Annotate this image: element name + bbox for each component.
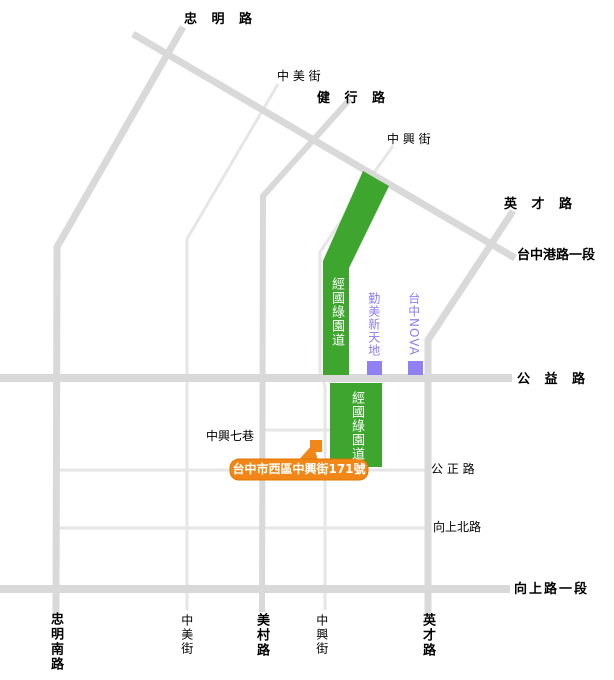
label-xiangshang-north-road: 向上北路 <box>433 521 481 535</box>
qinmei-poi-square <box>367 361 382 375</box>
label-taichung-port-road: 台中港路一段 <box>517 249 595 264</box>
label-jianxing-road: 健 行 路 <box>317 92 390 107</box>
callout-address-label[interactable]: 台中市西區中興街171號 <box>230 459 368 480</box>
label-meicun-road: 美村路 <box>253 613 268 658</box>
label-park-north: 經國綠園道 <box>328 277 343 347</box>
map-canvas: 忠 明 路 中 美 街 健 行 路 中 興 街 英 才 路 台中港路一段 公 益… <box>0 0 614 680</box>
label-zhongming-south-road: 忠明南路 <box>47 612 62 672</box>
map-graphics <box>0 0 614 680</box>
nova-poi-square <box>408 361 423 375</box>
road-yingcai-road <box>428 211 513 614</box>
label-zhongming-road: 忠 明 路 <box>184 13 257 28</box>
label-yingcai-road-bottom: 英才路 <box>419 613 434 658</box>
label-xiangshang-road: 向上路一段 <box>514 583 589 598</box>
label-yingcai-road-top: 英 才 路 <box>504 198 577 213</box>
label-zhongxing-lane7: 中興七巷 <box>206 430 254 444</box>
label-qinmei-poi: 勤美新天地 <box>366 292 380 357</box>
road-taichung-port-road <box>133 34 515 258</box>
label-gongzheng-road: 公 正 路 <box>431 463 475 477</box>
label-zhongmei-street-top: 中 美 街 <box>277 70 321 84</box>
label-zhongxing-street-top: 中 興 街 <box>387 133 431 147</box>
label-gongyi-road: 公 益 路 <box>517 373 590 388</box>
label-park-south: 經國綠園道 <box>348 391 363 461</box>
label-nova-poi: 台中NOVA <box>406 292 420 356</box>
label-zhongmei-street-bottom: 中美街 <box>179 614 193 656</box>
label-zhongxing-street-bottom: 中興街 <box>314 614 328 656</box>
